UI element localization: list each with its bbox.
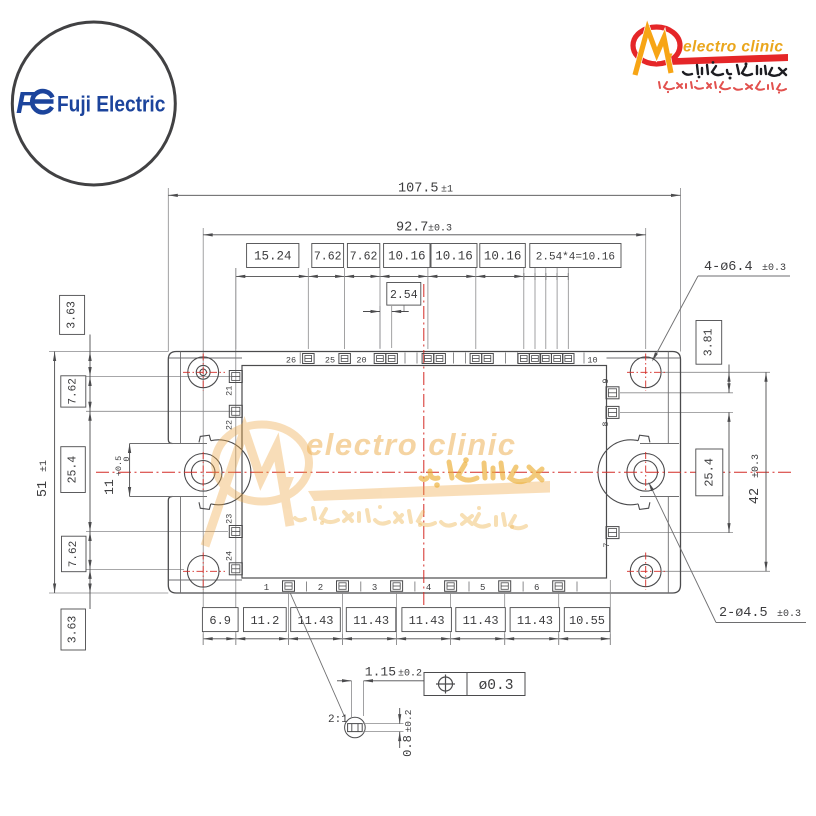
svg-text:±0.2: ±0.2 — [398, 669, 422, 680]
svg-text:23: 23 — [225, 514, 235, 524]
svg-text:10.16: 10.16 — [435, 250, 473, 264]
svg-text:4-ø6.4: 4-ø6.4 — [704, 260, 753, 275]
svg-text:electro clinic: electro clinic — [683, 39, 783, 56]
svg-text:ø0.3: ø0.3 — [479, 678, 514, 694]
svg-text:7.62: 7.62 — [350, 251, 378, 264]
svg-text:11.2: 11.2 — [250, 614, 279, 628]
svg-text:51: 51 — [36, 481, 51, 497]
svg-text:8: 8 — [601, 421, 611, 426]
svg-text:3.63: 3.63 — [67, 616, 80, 644]
svg-text:11.43: 11.43 — [409, 614, 445, 628]
svg-text:25.4: 25.4 — [702, 458, 716, 487]
svg-text:4: 4 — [426, 583, 431, 593]
svg-text:1: 1 — [264, 583, 269, 593]
svg-text:11: 11 — [102, 479, 117, 495]
svg-text:electro clinic: electro clinic — [306, 427, 517, 462]
svg-text:±0.3: ±0.3 — [428, 224, 452, 235]
svg-text:3: 3 — [372, 583, 377, 593]
svg-text:11.43: 11.43 — [517, 614, 553, 628]
svg-text:6: 6 — [534, 583, 539, 593]
svg-text:10.16: 10.16 — [388, 250, 426, 264]
svg-text:24: 24 — [225, 551, 235, 561]
svg-text:7: 7 — [602, 542, 612, 547]
svg-text:26: 26 — [286, 356, 296, 366]
svg-text:92.7: 92.7 — [396, 221, 428, 236]
svg-text:15.24: 15.24 — [254, 250, 292, 264]
svg-text:2-ø4.5: 2-ø4.5 — [719, 606, 768, 621]
svg-text:7.62: 7.62 — [314, 251, 342, 264]
svg-text:±1: ±1 — [441, 185, 453, 196]
svg-text:10.55: 10.55 — [569, 614, 605, 628]
svg-text:7.62: 7.62 — [68, 541, 80, 567]
svg-text:107.5: 107.5 — [398, 182, 439, 197]
svg-text:Fuji Electric: Fuji Electric — [57, 92, 165, 117]
svg-text:±0.3: ±0.3 — [777, 609, 801, 620]
svg-text:20: 20 — [356, 356, 366, 366]
svg-text:±0.3: ±0.3 — [762, 263, 786, 274]
svg-text:5: 5 — [480, 583, 485, 593]
svg-text:25.4: 25.4 — [67, 456, 80, 484]
svg-text:2.54*4=10.16: 2.54*4=10.16 — [536, 252, 615, 264]
svg-text:±0.2: ±0.2 — [403, 709, 414, 732]
svg-text:10.16: 10.16 — [484, 250, 522, 264]
svg-text:21: 21 — [225, 386, 235, 396]
svg-text:±1: ±1 — [39, 460, 50, 472]
svg-text:11.43: 11.43 — [463, 614, 499, 628]
svg-text:3.63: 3.63 — [66, 301, 79, 329]
svg-text:0: 0 — [122, 456, 132, 461]
svg-text:2.54: 2.54 — [390, 289, 418, 302]
svg-text:3.81: 3.81 — [702, 329, 715, 357]
svg-text:6.9: 6.9 — [209, 614, 231, 628]
svg-text:25: 25 — [325, 356, 335, 366]
svg-text:0.8: 0.8 — [401, 735, 415, 757]
svg-text:10: 10 — [587, 356, 597, 366]
svg-text:42: 42 — [748, 488, 763, 504]
svg-text:11.43: 11.43 — [353, 614, 389, 628]
svg-text:7.62: 7.62 — [67, 378, 79, 404]
svg-text:±0.3: ±0.3 — [751, 454, 762, 478]
svg-text:1.15: 1.15 — [365, 665, 396, 680]
svg-text:9: 9 — [601, 378, 611, 383]
svg-text:2: 2 — [318, 583, 323, 593]
